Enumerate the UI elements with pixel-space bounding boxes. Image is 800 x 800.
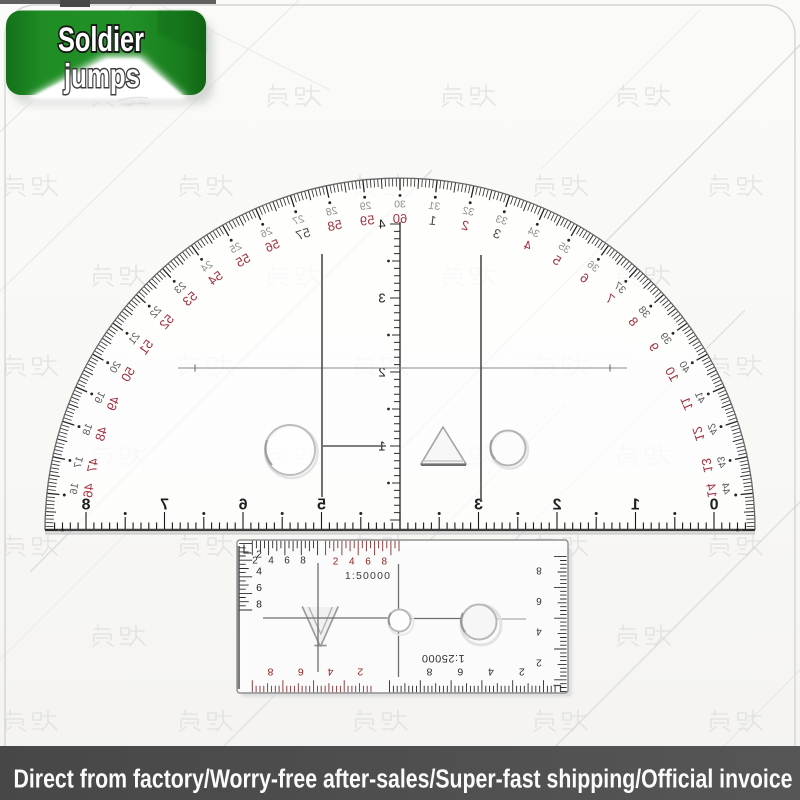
svg-text:8: 8 xyxy=(256,599,262,611)
svg-text:5: 5 xyxy=(317,497,326,514)
svg-text:2: 2 xyxy=(333,557,339,568)
svg-text:6: 6 xyxy=(365,557,371,568)
svg-text:Direct from factory/Worry-free: Direct from factory/Worry-free after-sal… xyxy=(14,766,793,794)
svg-text:2: 2 xyxy=(256,549,262,561)
svg-text:47: 47 xyxy=(84,457,102,474)
svg-text:2: 2 xyxy=(357,666,363,678)
svg-text:1: 1 xyxy=(428,213,437,229)
svg-text:44: 44 xyxy=(719,482,732,495)
svg-text:8: 8 xyxy=(267,666,273,678)
svg-text:8: 8 xyxy=(81,497,90,514)
svg-text:1:25000: 1:25000 xyxy=(421,652,464,664)
svg-text:13: 13 xyxy=(698,457,716,474)
svg-text:30: 30 xyxy=(394,199,406,211)
svg-text:2: 2 xyxy=(378,365,385,380)
svg-text:8: 8 xyxy=(536,565,542,576)
svg-text:6: 6 xyxy=(256,582,262,594)
svg-text:Soldier: Soldier xyxy=(58,21,144,59)
svg-text:4: 4 xyxy=(268,556,274,567)
svg-text:6: 6 xyxy=(238,497,247,514)
svg-text:2: 2 xyxy=(552,497,561,514)
svg-text:31: 31 xyxy=(428,200,441,213)
svg-text:7: 7 xyxy=(160,497,169,514)
svg-text:6: 6 xyxy=(298,666,304,678)
svg-text:16: 16 xyxy=(68,482,81,495)
svg-text:4: 4 xyxy=(349,557,355,568)
svg-text:59: 59 xyxy=(359,212,375,228)
svg-text:6: 6 xyxy=(536,595,542,606)
svg-text:1:50000: 1:50000 xyxy=(345,570,391,582)
svg-text:2: 2 xyxy=(519,666,525,678)
svg-text:8: 8 xyxy=(300,556,306,567)
svg-text:jumps: jumps xyxy=(63,57,140,94)
svg-text:4: 4 xyxy=(536,626,542,637)
svg-text:58: 58 xyxy=(326,217,343,235)
svg-text:4: 4 xyxy=(256,566,262,578)
svg-text:6: 6 xyxy=(457,666,463,678)
svg-text:0: 0 xyxy=(709,497,718,514)
svg-text:6: 6 xyxy=(284,556,290,567)
svg-text:8: 8 xyxy=(382,557,388,568)
svg-text:29: 29 xyxy=(359,200,372,213)
svg-text:2: 2 xyxy=(536,657,542,668)
svg-text:4: 4 xyxy=(378,217,385,232)
svg-text:8: 8 xyxy=(426,666,432,678)
svg-text:3: 3 xyxy=(378,291,385,306)
svg-text:4: 4 xyxy=(327,666,333,678)
svg-text:4: 4 xyxy=(488,666,494,678)
svg-text:1: 1 xyxy=(631,497,640,514)
